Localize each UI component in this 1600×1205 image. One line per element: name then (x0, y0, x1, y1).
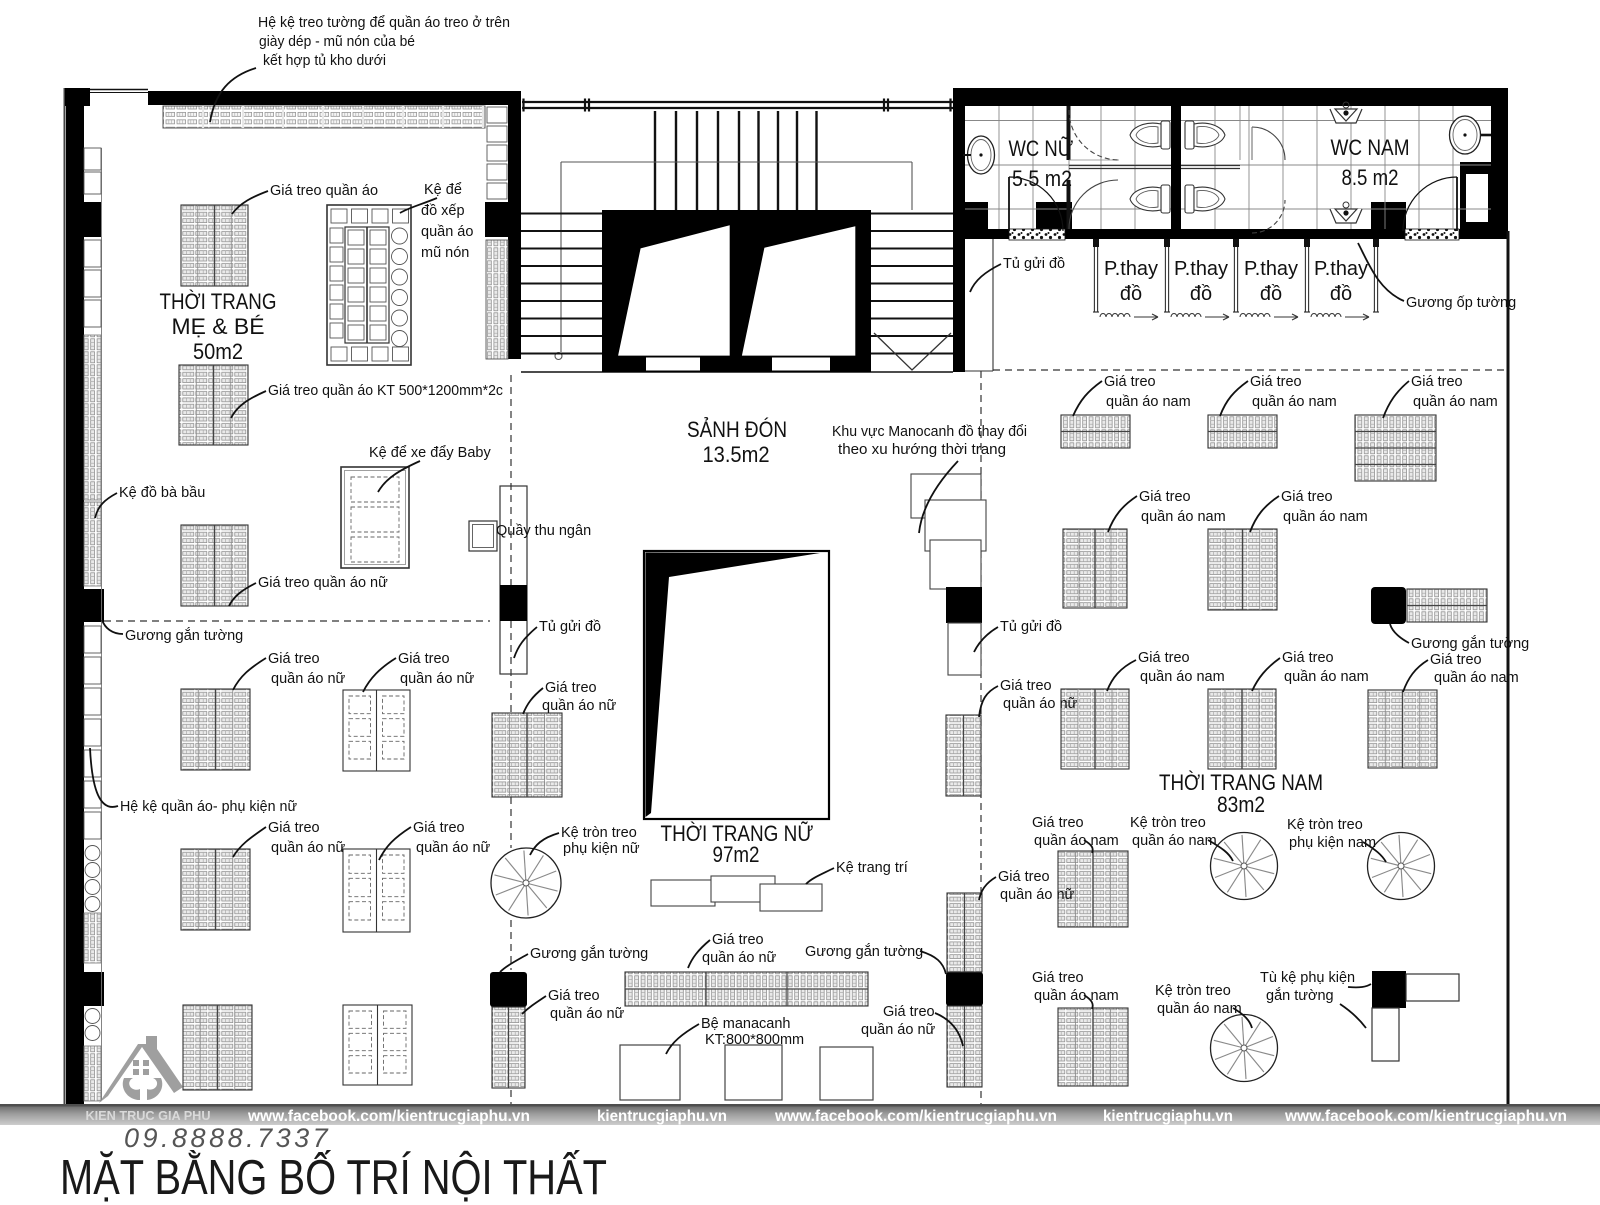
svg-text:quần áo nam: quần áo nam (1252, 394, 1337, 410)
svg-text:mũ nón: mũ nón (421, 245, 469, 261)
svg-text:P.thay: P.thay (1244, 258, 1298, 280)
svg-text:Giá treo: Giá treo (1104, 374, 1156, 390)
svg-text:Giá treo quần áo KT 500*1200mm: Giá treo quần áo KT 500*1200mm*2c (268, 382, 503, 399)
svg-text:quần áo nữ: quần áo nữ (271, 840, 346, 856)
svg-text:Giá treo quần áo nữ: Giá treo quần áo nữ (258, 575, 388, 591)
svg-text:Gương gắn tường: Gương gắn tường (530, 945, 648, 962)
svg-text:Bệ manacanh: Bệ manacanh (701, 1016, 790, 1032)
svg-text:Kệ tròn treo: Kệ tròn treo (1287, 817, 1363, 833)
svg-text:Giá treo: Giá treo (398, 651, 450, 667)
svg-text:Giá treo quần áo: Giá treo quần áo (270, 183, 378, 199)
svg-text:Giá treo: Giá treo (1281, 489, 1333, 505)
svg-text:5.5 m2: 5.5 m2 (1012, 166, 1072, 191)
svg-text:Quầy thu ngân: Quầy thu ngân (496, 523, 591, 539)
svg-text:www.facebook.com/kientrucgiaph: www.facebook.com/kientrucgiaphu.vn (1284, 1108, 1567, 1125)
svg-text:kết hợp tủ kho dưới: kết hợp tủ kho dưới (263, 52, 386, 69)
svg-text:Giá treo: Giá treo (1139, 489, 1191, 505)
svg-text:THỜI TRANG: THỜI TRANG (160, 289, 277, 314)
svg-text:KIEN TRUC GIA PHU: KIEN TRUC GIA PHU (86, 1109, 211, 1123)
svg-text:8.5 m2: 8.5 m2 (1342, 165, 1399, 190)
svg-text:50m2: 50m2 (193, 339, 243, 364)
svg-text:quần áo nam: quần áo nam (1157, 1001, 1242, 1017)
svg-text:quần áo nữ: quần áo nữ (400, 671, 475, 687)
svg-text:quần áo: quần áo (421, 224, 473, 240)
svg-text:Giá treo: Giá treo (1411, 374, 1463, 390)
svg-text:đồ: đồ (1120, 283, 1142, 305)
svg-text:quần áo nam: quần áo nam (1434, 670, 1519, 686)
svg-text:83m2: 83m2 (1217, 792, 1265, 817)
svg-text:Kệ để: Kệ để (424, 182, 462, 198)
svg-text:Giá treo: Giá treo (1430, 652, 1482, 668)
svg-text:Gương gắn tường: Gương gắn tường (805, 943, 923, 960)
svg-text:Gương gắn tường: Gương gắn tường (1411, 635, 1529, 652)
svg-text:www.facebook.com/kientrucgiaph: www.facebook.com/kientrucgiaphu.vn (774, 1108, 1057, 1125)
svg-text:Kệ tròn treo: Kệ tròn treo (1130, 815, 1206, 831)
svg-text:Giá treo: Giá treo (1000, 678, 1052, 694)
svg-text:gắn tường: gắn tường (1266, 987, 1334, 1004)
svg-text:Kệ tròn treo: Kệ tròn treo (1155, 983, 1231, 999)
svg-text:Kệ đồ bà bầu: Kệ đồ bà bầu (119, 485, 205, 501)
svg-text:Tù kệ phụ kiện: Tù kệ phụ kiện (1260, 970, 1355, 986)
svg-text:quần áo nam: quần áo nam (1283, 509, 1368, 525)
svg-text:Giá treo: Giá treo (883, 1004, 935, 1020)
svg-text:Giá treo: Giá treo (998, 869, 1050, 885)
svg-text:13.5m2: 13.5m2 (703, 442, 770, 467)
svg-text:Kệ để xe đẩy Baby: Kệ để xe đẩy Baby (369, 445, 491, 461)
svg-text:Tủ gửi đồ: Tủ gửi đồ (1003, 256, 1065, 272)
svg-text:MẸ & BÉ: MẸ & BÉ (172, 314, 265, 339)
svg-text:Giá treo: Giá treo (545, 680, 597, 696)
svg-text:quần áo nữ: quần áo nữ (702, 950, 777, 966)
svg-text:97m2: 97m2 (713, 842, 760, 867)
svg-text:Giá treo: Giá treo (1282, 650, 1334, 666)
svg-text:Giá treo: Giá treo (712, 932, 764, 948)
svg-text:Giá treo: Giá treo (413, 820, 465, 836)
svg-text:Tủ gửi đồ: Tủ gửi đồ (1000, 619, 1062, 635)
svg-text:giày dép - mũ nón của bé: giày dép - mũ nón của bé (259, 33, 415, 50)
svg-text:MẶT BẰNG BỐ TRÍ NỘI THẤT: MẶT BẰNG BỐ TRÍ NỘI THẤT (60, 1150, 607, 1205)
svg-text:WC NAM: WC NAM (1331, 135, 1410, 160)
svg-text:Giá treo: Giá treo (548, 988, 600, 1004)
svg-text:Hệ kệ quần áo- phụ kiện nữ: Hệ kệ quần áo- phụ kiện nữ (120, 798, 297, 815)
svg-text:đồ: đồ (1330, 283, 1352, 305)
svg-text:đồ: đồ (1260, 283, 1282, 305)
svg-text:Giá treo: Giá treo (1138, 650, 1190, 666)
svg-text:theo xu hướng thời trang: theo xu hướng thời trang (838, 442, 1006, 458)
svg-text:Giá treo: Giá treo (1032, 815, 1084, 831)
svg-text:quần áo nữ: quần áo nữ (416, 840, 491, 856)
svg-text:quần áo nam: quần áo nam (1141, 509, 1226, 525)
svg-text:quần áo nam: quần áo nam (1284, 669, 1369, 685)
svg-text:đồ: đồ (1190, 283, 1212, 305)
svg-text:quần áo nam: quần áo nam (1132, 833, 1217, 849)
svg-text:kientrucgiaphu.vn: kientrucgiaphu.vn (1103, 1108, 1233, 1125)
svg-text:P.thay: P.thay (1314, 258, 1368, 280)
svg-text:Kệ trang trí: Kệ trang trí (836, 860, 908, 876)
svg-text:Gương ốp tường: Gương ốp tường (1406, 295, 1516, 311)
svg-text:KT:800*800mm: KT:800*800mm (705, 1032, 804, 1048)
svg-text:Giá treo: Giá treo (268, 651, 320, 667)
svg-text:Khu vực Manocanh đồ thay đổi: Khu vực Manocanh đồ thay đổi (832, 424, 1027, 440)
svg-text:09.8888.7337: 09.8888.7337 (124, 1123, 331, 1153)
svg-text:kientrucgiaphu.vn: kientrucgiaphu.vn (597, 1108, 727, 1125)
svg-text:quần áo nam: quần áo nam (1413, 394, 1498, 410)
svg-text:P.thay: P.thay (1104, 258, 1158, 280)
svg-text:Kệ tròn treo: Kệ tròn treo (561, 825, 637, 841)
svg-text:phụ kiện nữ: phụ kiện nữ (563, 841, 640, 857)
svg-text:quần áo nữ: quần áo nữ (550, 1006, 625, 1022)
svg-text:Hệ kệ treo tường để quần áo tr: Hệ kệ treo tường để quần áo treo ở trên (258, 14, 510, 31)
svg-text:quần áo nữ: quần áo nữ (861, 1022, 936, 1038)
svg-text:đồ xếp: đồ xếp (421, 203, 465, 219)
svg-text:quần áo nữ: quần áo nữ (1003, 696, 1078, 712)
svg-text:quần áo nam: quần áo nam (1140, 669, 1225, 685)
svg-text:Giá treo: Giá treo (1250, 374, 1302, 390)
svg-text:Gương gắn tường: Gương gắn tường (125, 627, 243, 644)
svg-text:quần áo nam: quần áo nam (1106, 394, 1191, 410)
svg-text:quần áo nam: quần áo nam (1034, 833, 1119, 849)
svg-text:WC NỮ: WC NỮ (1009, 136, 1074, 161)
svg-text:SẢNH ĐÓN: SẢNH ĐÓN (687, 417, 787, 442)
svg-text:P.thay: P.thay (1174, 258, 1228, 280)
svg-text:quần áo nam: quần áo nam (1034, 988, 1119, 1004)
svg-text:quần áo nữ: quần áo nữ (271, 671, 346, 687)
svg-text:quần áo nữ: quần áo nữ (542, 698, 617, 714)
svg-text:Tủ gửi đồ: Tủ gửi đồ (539, 619, 601, 635)
svg-text:Giá treo: Giá treo (268, 820, 320, 836)
svg-text:Giá treo: Giá treo (1032, 970, 1084, 986)
svg-text:quần áo nữ: quần áo nữ (1000, 887, 1075, 903)
